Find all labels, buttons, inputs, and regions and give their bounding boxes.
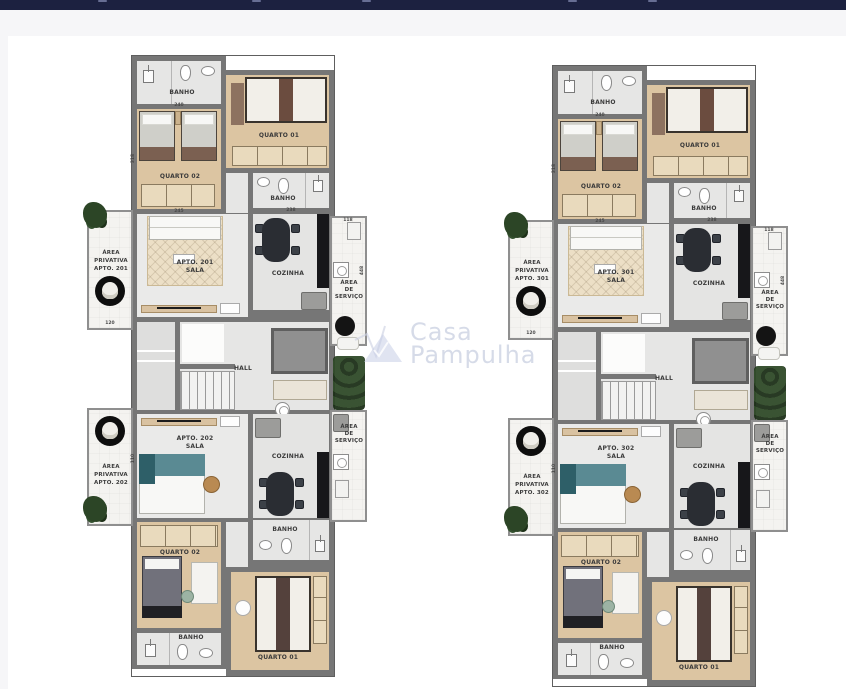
browser-top-bar	[0, 0, 846, 10]
stair-line	[137, 360, 175, 362]
water-heater	[347, 222, 361, 240]
kitchen-counter	[738, 462, 750, 528]
room-label-hall: HALL	[655, 375, 673, 382]
shower-icon	[734, 190, 744, 202]
hedge-plants	[333, 356, 365, 410]
room-label-banho: BANHO	[693, 536, 718, 543]
wardrobe	[232, 146, 327, 166]
room-label-quarto01: QUARTO 01	[680, 142, 720, 149]
desk-chair	[181, 590, 194, 603]
toilet-icon	[702, 548, 713, 564]
room-label-quarto02: QUARTO 02	[160, 549, 200, 556]
room-label-apto-sala: APTO. 301	[598, 269, 635, 276]
shower-icon	[315, 540, 325, 552]
bench	[273, 380, 327, 400]
room-label-apto-sala: APTO. 202	[177, 435, 214, 442]
room-label-de: DE	[766, 441, 775, 447]
chair	[716, 488, 725, 497]
dining-table	[266, 472, 294, 516]
double-bed	[245, 77, 327, 123]
room-label-banho: BANHO	[270, 195, 295, 202]
stair-landing	[182, 324, 224, 362]
egg-chair	[516, 426, 546, 456]
room-label-area: ÁREA	[102, 250, 119, 256]
dimension-label: 238	[286, 208, 295, 213]
water-heater	[768, 232, 782, 250]
room-label-banho: BANHO	[599, 644, 624, 651]
dimension-label: 240	[174, 103, 183, 108]
room-label-cozinha: COZINHA	[693, 463, 725, 470]
tv-icon	[578, 317, 622, 319]
toilet-icon	[281, 538, 292, 554]
wardrobe	[653, 156, 748, 176]
room-label-area: ÁREA	[761, 290, 778, 296]
chair	[291, 246, 300, 255]
sink-icon	[257, 177, 270, 187]
plant-icon	[83, 202, 107, 228]
wardrobe	[562, 194, 636, 217]
dining-table	[687, 482, 715, 526]
room-label-quarto02: QUARTO 02	[581, 559, 621, 566]
sink-icon	[678, 187, 691, 197]
single-bed	[560, 121, 596, 171]
room-label-banho: BANHO	[590, 99, 615, 106]
laundry-item	[758, 347, 780, 360]
floor-plan-left: BANHO 240 QUARTO 02 245 318 QUARTO 01 BA…	[85, 56, 367, 676]
desk	[612, 572, 639, 614]
room-label-hall: HALL	[234, 365, 252, 372]
room-label-area: ÁREA	[102, 464, 119, 470]
sideboard	[220, 416, 240, 427]
sink-icon	[199, 648, 213, 658]
room-label-area: ÁREA	[761, 434, 778, 440]
room-label-apto: APTO. 201	[94, 266, 128, 272]
egg-chair	[95, 276, 125, 306]
room-label-sala: SALA	[186, 267, 204, 274]
egg-chair	[95, 416, 125, 446]
double-bed	[255, 576, 311, 652]
tv-icon	[157, 420, 201, 422]
room-label-quarto02: QUARTO 02	[160, 173, 200, 180]
shower-icon	[736, 550, 746, 562]
kitchen-cabinet	[255, 418, 281, 438]
dimension-label: 118	[764, 228, 773, 233]
kitchen-counter	[317, 214, 329, 288]
bed	[563, 566, 603, 628]
side-table	[624, 486, 641, 503]
room-label-apto: APTO. 301	[515, 276, 549, 282]
single-bed	[602, 121, 638, 171]
hedge-plants	[754, 366, 786, 420]
double-bed	[676, 586, 732, 662]
room-label-quarto02: QUARTO 02	[581, 183, 621, 190]
dimension-label: 318	[131, 154, 136, 163]
room-label-area: ÁREA	[523, 260, 540, 266]
single-bed	[181, 111, 217, 161]
room-label-servico: SERVIÇO	[335, 438, 363, 444]
toilet-icon	[699, 188, 710, 204]
dimension-label: 118	[343, 218, 352, 223]
stairs	[180, 371, 235, 410]
room-label-sala: SALA	[186, 443, 204, 450]
sofa	[149, 216, 221, 240]
room-label-quarto01: QUARTO 01	[258, 654, 298, 661]
room-label-banho: BANHO	[272, 526, 297, 533]
washing-machine-icon	[333, 454, 349, 470]
room-label-area: ÁREA	[523, 474, 540, 480]
tab-remnant-icon	[568, 0, 577, 2]
round-table	[656, 610, 672, 626]
room-label-apto: APTO. 302	[515, 490, 549, 496]
room-label-de: DE	[766, 297, 775, 303]
wall-step-cover	[647, 66, 755, 80]
room-label-de: DE	[345, 287, 354, 293]
round-table	[235, 600, 251, 616]
elevator-shaft	[692, 338, 749, 384]
sink-icon	[620, 658, 634, 668]
dimension-label: 110	[131, 454, 136, 463]
dimension-label: 120	[105, 321, 114, 326]
dimension-label: 120	[526, 331, 535, 336]
chair	[712, 234, 721, 243]
room-label-sala: SALA	[607, 277, 625, 284]
single-bed	[139, 111, 175, 161]
dimension-label: 110	[552, 464, 557, 473]
partition	[171, 61, 172, 104]
room-label-cozinha: COZINHA	[272, 270, 304, 277]
corridor	[647, 183, 669, 223]
room-label-servico: SERVIÇO	[756, 304, 784, 310]
dimension-label: 448	[781, 276, 786, 285]
dimension-label: 448	[360, 266, 365, 275]
room-label-privativa: PRIVATIVA	[515, 482, 549, 488]
room-label-privativa: PRIVATIVA	[515, 268, 549, 274]
double-bed	[666, 87, 748, 133]
wall-step-cover	[553, 679, 647, 686]
wall	[601, 374, 656, 379]
kitchen-cabinet	[301, 292, 327, 310]
room-label-privativa: PRIVATIVA	[94, 472, 128, 478]
corridor	[226, 522, 248, 567]
side-table	[203, 476, 220, 493]
tab-remnant-icon	[252, 0, 261, 2]
room-label-apto-sala: APTO. 201	[177, 259, 214, 266]
water-heater	[335, 480, 349, 498]
room-label-apto: APTO. 202	[94, 480, 128, 486]
wardrobe	[313, 576, 327, 644]
partition	[592, 71, 593, 114]
wall	[180, 364, 235, 369]
partition	[590, 643, 591, 675]
wardrobe	[140, 525, 218, 547]
room-label-sala: SALA	[607, 453, 625, 460]
sofa-throw	[560, 464, 576, 494]
toilet-icon	[278, 178, 289, 194]
nightstand	[596, 121, 602, 135]
plant-icon	[504, 506, 528, 532]
desk	[191, 562, 218, 604]
laundry-basin	[335, 316, 355, 336]
partition	[730, 530, 731, 570]
room-label-banho: BANHO	[691, 205, 716, 212]
dimension-label: 245	[595, 219, 604, 224]
room-label-banho: BANHO	[169, 89, 194, 96]
room-label-area: ÁREA	[340, 424, 357, 430]
kitchen-cabinet	[676, 428, 702, 448]
dimension-label: 245	[174, 209, 183, 214]
kitchen-counter	[738, 224, 750, 298]
shower-icon	[313, 180, 323, 192]
toilet-icon	[180, 65, 191, 81]
kitchen-counter	[317, 452, 329, 518]
stair-line	[558, 370, 596, 372]
dining-table	[683, 228, 711, 272]
room-label-servico: SERVIÇO	[756, 448, 784, 454]
dimension-label: 240	[595, 113, 604, 118]
corridor	[647, 532, 669, 577]
room-label-privativa: PRIVATIVA	[94, 258, 128, 264]
tab-remnant-icon	[362, 0, 371, 2]
stair-line	[137, 350, 175, 352]
room-label-area: ÁREA	[340, 280, 357, 286]
wall-step-cover	[226, 56, 334, 70]
room-label-de: DE	[345, 431, 354, 437]
shower-icon	[564, 80, 575, 93]
kitchen-cabinet	[722, 302, 748, 320]
stair-landing	[603, 334, 645, 372]
wardrobe	[734, 586, 748, 654]
bed	[142, 556, 182, 618]
toilet-icon	[177, 644, 188, 660]
page: { "page": { "top_bar_color": "#1c2140", …	[0, 0, 846, 689]
room-label-cozinha: COZINHA	[272, 453, 304, 460]
wardrobe	[561, 535, 639, 557]
stair-well	[137, 322, 175, 410]
partition	[305, 173, 306, 208]
bedside-rug	[652, 93, 665, 135]
chair	[716, 510, 725, 519]
sideboard	[641, 426, 661, 437]
chair	[295, 500, 304, 509]
stair-line	[558, 360, 596, 362]
washing-machine-icon	[754, 272, 770, 288]
nightstand	[175, 111, 181, 125]
sideboard	[641, 313, 661, 324]
toilet-icon	[598, 654, 609, 670]
dimension-label: 318	[552, 164, 557, 173]
tv-icon	[157, 307, 201, 309]
dining-table	[262, 218, 290, 262]
shower-icon	[566, 654, 577, 667]
stairs	[601, 381, 656, 420]
bedside-rug	[231, 83, 244, 125]
plant-icon	[504, 212, 528, 238]
chair	[295, 478, 304, 487]
chair	[712, 256, 721, 265]
tab-remnant-icon	[648, 0, 657, 2]
sofa-throw	[139, 454, 155, 484]
sink-icon	[622, 76, 636, 86]
room-label-banho: BANHO	[178, 634, 203, 641]
water-heater	[756, 490, 770, 508]
room-label-servico: SERVIÇO	[335, 294, 363, 300]
partition	[309, 520, 310, 560]
washing-machine-icon	[754, 464, 770, 480]
elevator-shaft	[271, 328, 328, 374]
shower-icon	[143, 70, 154, 83]
tab-remnant-icon	[98, 0, 107, 2]
sideboard	[220, 303, 240, 314]
washing-machine-icon	[333, 262, 349, 278]
sink-icon	[201, 66, 215, 76]
plant-icon	[83, 496, 107, 522]
chair	[291, 224, 300, 233]
desk-chair	[602, 600, 615, 613]
egg-chair	[516, 286, 546, 316]
room-label-quarto01: QUARTO 01	[259, 132, 299, 139]
stair-well	[558, 332, 596, 420]
wall-step-cover	[132, 669, 226, 676]
partition	[169, 633, 170, 665]
dimension-label: 238	[707, 218, 716, 223]
room-label-cozinha: COZINHA	[693, 280, 725, 287]
floor-plan-right: BANHO 240 QUARTO 02 245 318 QUARTO 01 BA…	[506, 66, 788, 686]
laundry-basin	[756, 326, 776, 346]
corridor	[226, 173, 248, 213]
toilet-icon	[601, 75, 612, 91]
shower-icon	[145, 644, 156, 657]
wardrobe	[141, 184, 215, 207]
bench	[694, 390, 748, 410]
room-label-quarto01: QUARTO 01	[679, 664, 719, 671]
partition	[726, 183, 727, 218]
laundry-item	[337, 337, 359, 350]
sink-icon	[259, 540, 272, 550]
sofa	[570, 226, 642, 250]
sink-icon	[680, 550, 693, 560]
room-label-apto-sala: APTO. 302	[598, 445, 635, 452]
tv-icon	[578, 430, 622, 432]
